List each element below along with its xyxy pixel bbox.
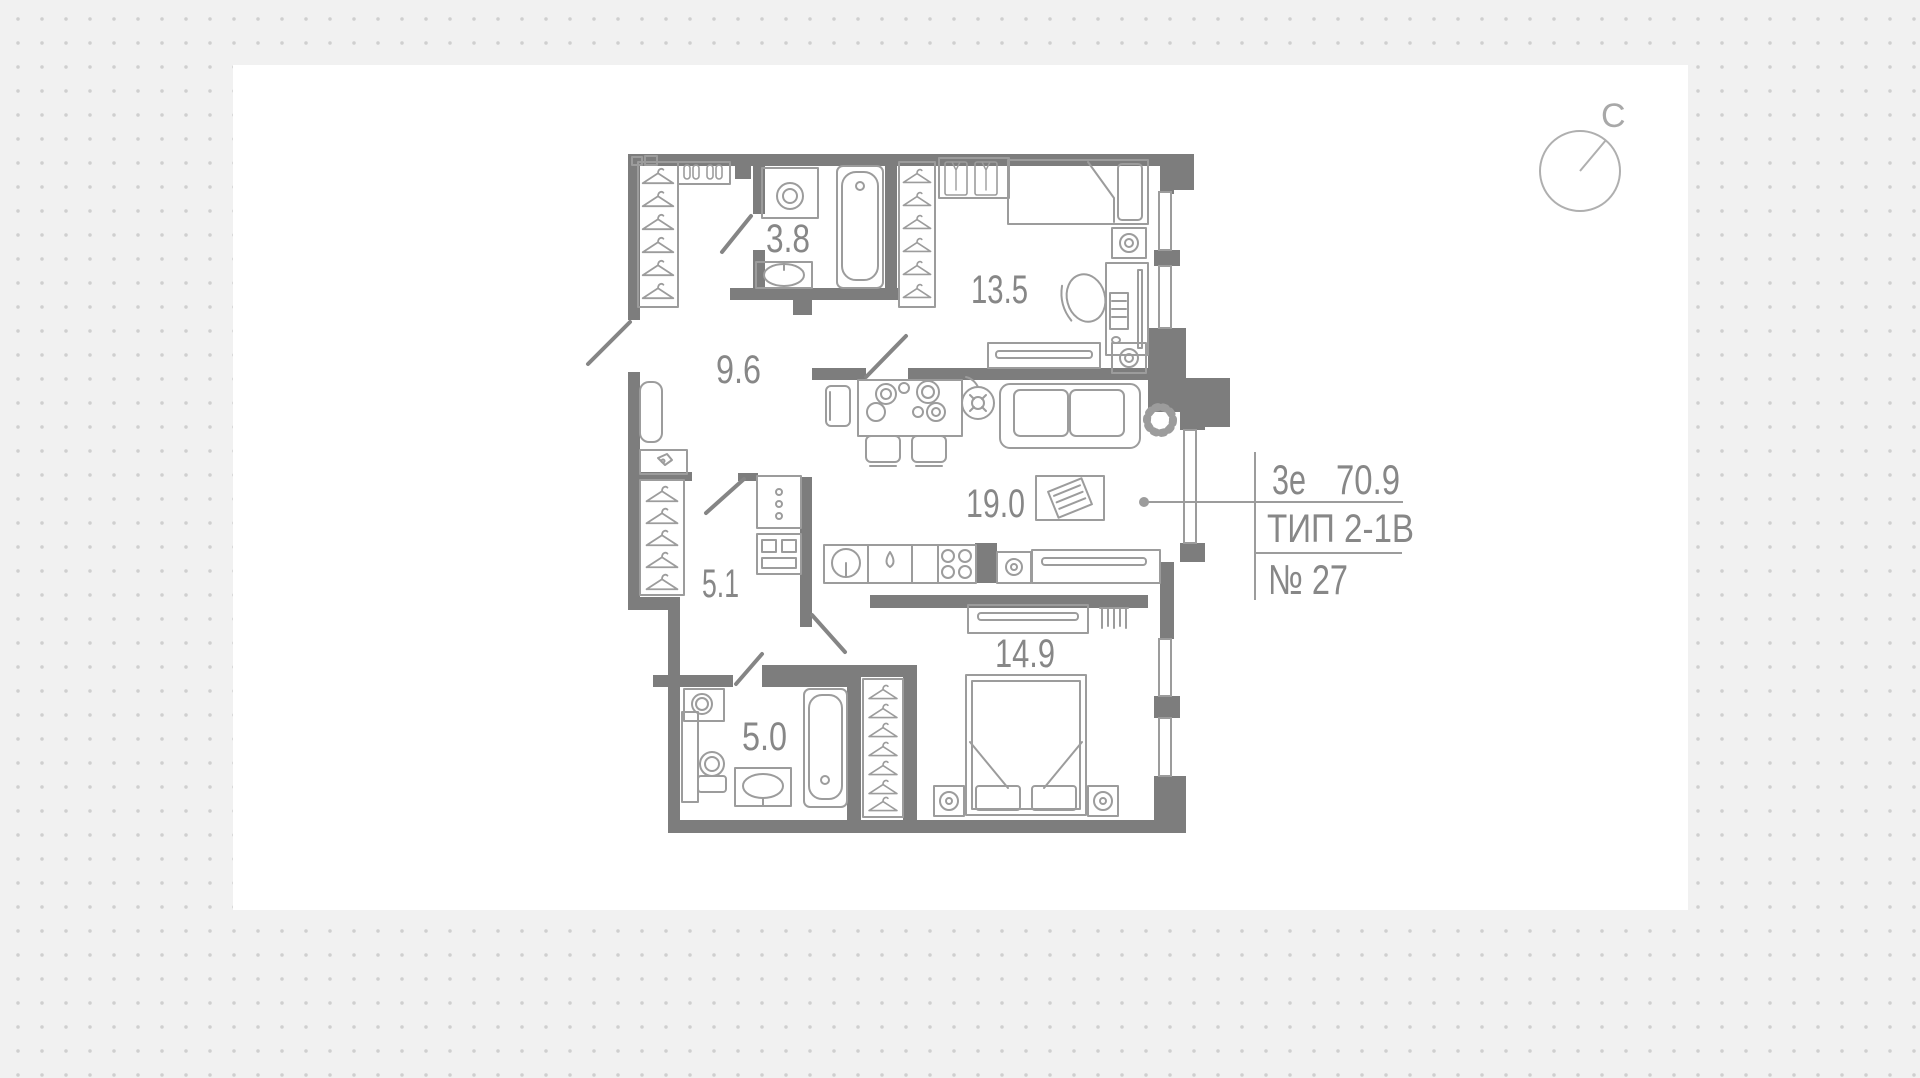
wall-bath2-top-right [762,665,847,687]
bench [640,382,662,442]
wall-right-sill-top [1180,412,1205,430]
wall-bath1-bedroom1 [885,166,897,300]
nightstand-bedroom2-right [1088,786,1118,816]
room-label-bedroom-top: 13.5 [971,268,1028,312]
wardrobe-corridor [640,480,684,595]
door-entry [588,322,630,364]
kitchen-counter-long [1032,550,1160,583]
wardrobe-bedroom2 [863,679,903,817]
ceiling-fan [962,377,994,419]
window-living [1184,430,1196,543]
double-bed [966,675,1086,815]
wall-bath2-closet [847,665,861,820]
total-area-text: 70.9 [1336,456,1400,503]
wall-right-b [1154,250,1180,266]
compass: С [1540,97,1626,211]
fridge [757,476,801,528]
wall-right-d [1154,696,1180,718]
nightstand-bedroom2-left [934,786,964,816]
compass-north-letter: С [1601,97,1626,135]
washer-top [762,168,818,218]
rug [1036,476,1104,520]
wall-living-bedroom2 [870,595,1148,608]
wall-right-sill-bottom [1180,543,1205,562]
window-bedroom2-b [1159,718,1171,776]
mirror-shelf [640,450,687,474]
room-label-corridor: 5.1 [702,562,739,606]
wardrobe-hall-top [638,162,678,307]
wall-bottom [668,820,1186,833]
wall-closet2-bedroom2 [903,665,917,820]
tv-console-bedroom1 [988,343,1100,368]
single-bed [1008,160,1148,224]
wall-bath2-top [653,675,733,687]
door-bedroom-bottom [812,615,845,652]
door-bedroom-top [866,336,906,377]
wall-right-e [1154,776,1186,822]
compass-needle [1580,140,1606,171]
room-label-bathroom-bottom: 5.0 [742,715,787,759]
wall-right-a [1160,166,1174,194]
dining-table [858,380,962,436]
wall-bath1-step [793,288,812,315]
bathtub-top [837,166,883,288]
room-label-bedroom-bottom: 14.9 [995,632,1055,676]
room-label-bathroom-top: 3.8 [766,217,810,261]
wall-stub-top [735,166,751,179]
dishwasher [997,552,1031,583]
door-bathroom-bottom [736,654,762,684]
stove [938,545,976,583]
furniture [632,156,1173,817]
radiator-icon [1100,608,1128,628]
unit-number-text: № 27 [1268,556,1348,603]
wall-right-c [1160,562,1174,639]
annotation-block: 3е 70.9 ТИП 2-1В № 27 [1139,452,1414,603]
wall-hall-living-a [812,368,866,380]
wardrobe-bath-side [899,162,935,307]
window-bedroom1-b [1159,266,1171,328]
walls [628,154,1230,833]
oven-unit [757,534,801,574]
tv-console-bedroom2 [968,605,1088,633]
room-label-hall: 9.6 [716,348,761,392]
nightstand-bedroom1 [1112,228,1146,258]
floor-plan-canvas: 3.8 9.6 13.5 19.0 5.1 5.0 14.9 3е 70.9 Т… [0,0,1920,1078]
wall-right-pier [1148,328,1186,412]
kitchen-cabinet [868,545,938,583]
kitchen-sink-unit [824,545,868,583]
wall-closet2-cap [861,665,903,677]
door-bathroom-top [722,216,751,252]
wall-left-lower [668,610,680,822]
wall-bath1-bottom [730,288,900,300]
desk-chair [1057,270,1111,327]
toilet [698,752,726,792]
washer-bottom [684,689,724,721]
desk [1106,263,1148,355]
door-corridor [706,479,744,513]
window-bedroom1-a [1159,192,1171,250]
wall-left-step [628,597,680,610]
room-label-living: 19.0 [966,482,1025,526]
sink-bottom [735,768,791,806]
layout-type-text: ТИП 2-1В [1267,507,1414,551]
sofa [1000,384,1140,448]
wall-bath1-left-upper [753,166,765,214]
bathtub-bottom [804,689,847,807]
window-bedroom2-a [1159,639,1171,696]
bath2-counter [682,712,698,802]
wall-left-mid [628,372,640,597]
windows [1159,192,1196,776]
plan-type-text: 3е [1272,456,1306,503]
wall-kitchen-stub [975,543,997,583]
